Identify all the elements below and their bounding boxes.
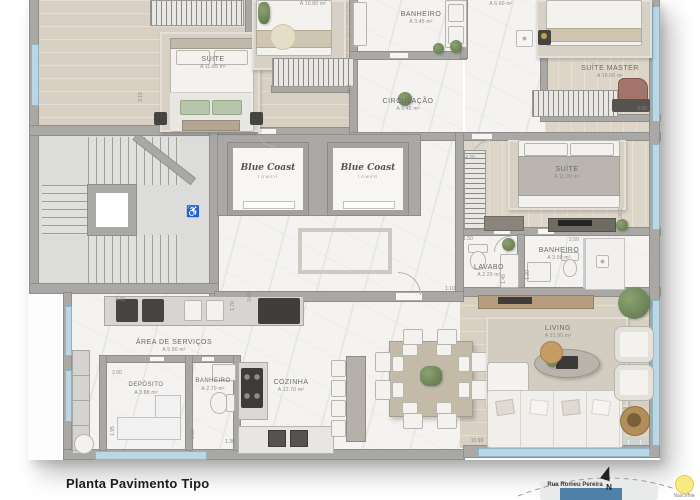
bathtub: [353, 2, 367, 46]
dim-label: 3.00: [256, 0, 262, 14]
room-name: BANHEIRO: [519, 246, 599, 255]
stair-lightwell: [96, 193, 128, 227]
tv: [558, 220, 592, 226]
room-area: A 2.70 m²: [184, 386, 242, 393]
room-area: A 3.45 m²: [381, 19, 461, 26]
closet: [464, 150, 486, 230]
closet: [150, 0, 244, 26]
cushion: [180, 100, 210, 115]
room-area: A 5.90 m²: [104, 347, 244, 354]
floor-room-660: [465, 0, 545, 140]
door-gap: [202, 357, 214, 361]
stair-flight-left: [42, 185, 88, 235]
room-area: A 3.00 m²: [519, 255, 599, 262]
room-label-660: A 6.60 m²: [471, 1, 531, 8]
dim-label: 2.50: [562, 237, 586, 243]
room-name: BANHEIRO: [381, 10, 461, 19]
dim-label: 1.50: [456, 236, 480, 242]
sink: [184, 300, 202, 321]
side-table-top: [627, 413, 641, 427]
elevator-logo: Blue Coast TOWER: [333, 164, 403, 180]
pillow: [524, 143, 568, 156]
stool: [331, 400, 346, 417]
toilet: [563, 259, 577, 277]
window: [31, 44, 39, 106]
floor-plan-page: ♿ Blue Coast TOWER: [0, 0, 700, 500]
wall: [100, 356, 240, 362]
room-area: A 2.20 m²: [459, 272, 519, 279]
plant-icon: [433, 43, 444, 54]
dining-chair: [471, 352, 487, 372]
room-label-living: LIVING A 31.90 m²: [518, 324, 598, 340]
room-label-suite-right: SUÍTE A 11.90 m²: [527, 165, 607, 181]
plant-icon: [502, 238, 515, 251]
dim-label: 4.20: [458, 155, 482, 161]
wall: [30, 284, 218, 293]
dim-label: 2.10: [190, 427, 196, 441]
room-label-deposito: DEPÓSITO A 3.88 m²: [106, 382, 186, 396]
headboard: [170, 38, 254, 49]
room-name: CIRCULAÇÃO: [368, 97, 448, 106]
dining-chair: [375, 380, 391, 400]
room-area: A 6.60 m²: [471, 1, 531, 8]
room-name: LAVABO: [459, 263, 519, 272]
room-name: SUITE: [173, 55, 253, 64]
washer: [74, 434, 94, 454]
sink: [206, 300, 224, 321]
plant-icon: [616, 219, 628, 231]
pillow: [570, 143, 614, 156]
dining-chair: [437, 329, 457, 345]
street-label: Rua Romeu Pereira: [538, 482, 612, 488]
dining-chair: [471, 380, 487, 400]
plant-icon: [618, 287, 650, 319]
place-setting: [402, 402, 418, 414]
room-area: A 16.60 m²: [558, 73, 662, 80]
accessibility-icon: ♿: [186, 205, 200, 218]
window: [65, 370, 72, 422]
room-label-suite-1: SUITE A 11.85 m²: [173, 55, 253, 71]
room-area: A 3.88 m²: [106, 390, 186, 397]
dim-label: 3.40: [108, 297, 132, 303]
brand-sub: TOWER: [333, 176, 403, 180]
dim-label: 2.00: [105, 370, 129, 376]
dim-label: 1.30: [218, 439, 242, 445]
room-area: A 9.45 m²: [368, 106, 448, 113]
nightstand: [154, 112, 167, 125]
room-name: SUÍTE MASTER: [558, 64, 662, 73]
dining-chair: [437, 413, 457, 429]
stool: [331, 380, 346, 397]
dim-label: 2.60: [616, 206, 622, 220]
door-gap: [390, 53, 408, 58]
pillow: [529, 399, 548, 416]
place-setting: [436, 402, 452, 414]
room-label-bathroom-top: BANHEIRO A 3.45 m²: [381, 10, 461, 26]
cushion: [212, 100, 242, 115]
room-area: A 11.85 m²: [173, 64, 253, 71]
shower-drain: [516, 30, 533, 47]
appliance: [142, 299, 164, 322]
wall: [30, 126, 38, 293]
brand-name: Blue Coast: [341, 163, 396, 173]
room-label-service-area: ÁREA DE SERVIÇOS A 5.90 m²: [104, 338, 244, 354]
room-label-kitchen: COZINHA A 12.70 m²: [251, 378, 331, 394]
room-name: DEPÓSITO: [106, 382, 186, 390]
plant-icon: [450, 40, 462, 53]
nightstand: [250, 112, 263, 125]
dim-label: 3.15: [138, 90, 144, 104]
dim-label: 1.45: [501, 272, 507, 286]
dining-chair: [403, 413, 423, 429]
dim-label: 10.90: [462, 438, 492, 444]
lamp: [541, 33, 547, 39]
plan-title: Planta Pavimento Tipo: [66, 476, 209, 491]
centerpiece-plant-icon: [420, 366, 442, 386]
stool: [331, 360, 346, 377]
stool: [331, 420, 346, 437]
room-label-lavabo: LAVABO A 2.20 m²: [459, 263, 519, 279]
room-name: COZINHA: [251, 378, 331, 387]
island: [346, 356, 366, 442]
door-gap: [150, 357, 164, 361]
sun-label: Nascente: [666, 493, 700, 499]
dim-label: 1.95: [110, 424, 116, 438]
window: [652, 144, 660, 230]
counter: [238, 426, 334, 454]
room-name: BANHEIRO: [184, 378, 242, 386]
place-setting: [392, 356, 404, 372]
sink: [268, 430, 286, 447]
wall: [350, 52, 466, 59]
appliance: [258, 298, 300, 324]
round-rug: [270, 24, 296, 50]
foyer-rug: [298, 228, 392, 274]
closet: [272, 58, 354, 87]
elevator-logo: Blue Coast TOWER: [233, 164, 303, 180]
dim-label: 1.70: [230, 299, 236, 313]
dining-chair: [403, 329, 423, 345]
armchair: [614, 364, 654, 401]
pillow: [591, 399, 611, 416]
place-setting: [458, 382, 470, 398]
room-label-circulation: CIRCULAÇÃO A 9.45 m²: [368, 97, 448, 113]
room-area: A 10.80 m²: [283, 1, 343, 8]
place-setting: [392, 382, 404, 398]
room-label-bathroom-bottom: BANHEIRO A 2.70 m²: [184, 378, 242, 392]
toilet-tank: [226, 394, 235, 412]
stair-flight-bottom: [88, 235, 180, 283]
sun-icon: [675, 475, 694, 494]
north-label: N: [603, 483, 615, 492]
dim-label: 3.60: [247, 290, 253, 304]
room-area: A 31.90 m²: [518, 333, 598, 340]
brand-name: Blue Coast: [241, 163, 296, 173]
dining-chair: [375, 352, 391, 372]
wall: [210, 126, 218, 296]
room-name: ÁREA DE SERVIÇOS: [104, 338, 244, 347]
room-name: LIVING: [518, 324, 598, 333]
dim-label: 3.00: [630, 106, 654, 112]
dresser: [484, 216, 524, 231]
door-gap: [472, 134, 492, 139]
window: [65, 306, 72, 356]
room-label-bedroom-2: A 10.80 m²: [283, 1, 343, 8]
window: [95, 451, 207, 460]
counter: [117, 417, 181, 440]
brand-sub: TOWER: [233, 176, 303, 180]
place-setting: [436, 344, 452, 356]
room-label-bathroom-right: BANHEIRO A 3.00 m²: [519, 246, 599, 262]
closet: [532, 90, 618, 117]
bench: [182, 120, 240, 131]
console-decor: [498, 297, 532, 304]
place-setting: [402, 344, 418, 356]
sink: [290, 430, 308, 447]
room-area: A 11.90 m²: [527, 174, 607, 181]
side-stool: [540, 341, 563, 364]
window: [478, 448, 650, 457]
elevator-sill: [243, 201, 295, 209]
armchair: [614, 326, 654, 363]
blanket: [546, 28, 642, 42]
room-area: A 12.70 m²: [251, 387, 331, 394]
room-name: SUÍTE: [527, 165, 607, 174]
place-setting: [458, 356, 470, 372]
pillow: [495, 399, 515, 416]
console: [478, 295, 594, 309]
pillow: [561, 399, 580, 416]
dim-label: 1.10: [438, 286, 462, 292]
room-label-suite-master: SUÍTE MASTER A 16.60 m²: [558, 64, 662, 80]
dim-label: 1.20: [525, 268, 531, 282]
dim-label: 1.40: [345, 82, 351, 96]
elevator-sill: [343, 201, 395, 209]
